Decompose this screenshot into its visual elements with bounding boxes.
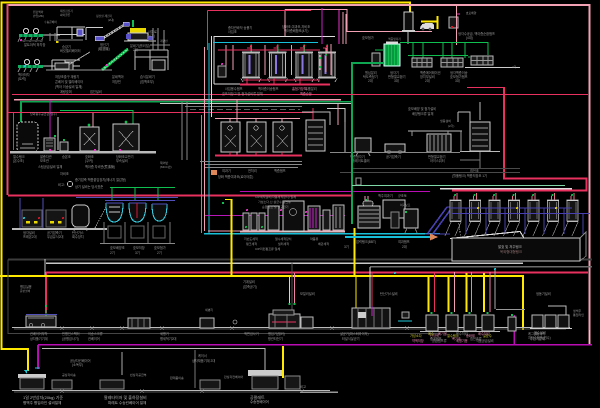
svg-text:(월풀탱크) 맥즙저장조 1기: (월풀탱크) 맥즙저장조 1기 <box>452 173 487 178</box>
svg-text:용수설비: 용수설비 <box>534 330 546 335</box>
svg-text:저장빈: 저장빈 <box>112 79 121 84</box>
svg-text:순환펌프 및 열교환기: 순환펌프 및 열교환기 <box>262 204 289 209</box>
svg-text:부속설비: 부속설비 <box>116 158 128 163</box>
svg-text:2기: 2기 <box>110 250 115 255</box>
svg-text:압력탱크(BBT): 압력탱크(BBT) <box>356 239 376 244</box>
svg-text:CIP리턴펌프류 일체: CIP리턴펌프류 일체 <box>255 246 280 251</box>
svg-text:버킷엘리베이터: 버킷엘리베이터 <box>60 48 81 53</box>
svg-text:(맥아 이송설비 일체): (맥아 이송설비 일체) <box>55 84 82 89</box>
svg-text:공상자이송: 공상자이송 <box>62 372 76 377</box>
svg-text:만상자컨베이어: 만상자컨베이어 <box>224 374 244 379</box>
svg-text:효모배양조: 효모배양조 <box>110 245 125 250</box>
svg-text:냉동기설비: 냉동기설비 <box>536 291 551 296</box>
svg-text:(2기): (2기) <box>448 123 454 128</box>
svg-text:살균기(파스퇴라이저): 살균기(파스퇴라이저) <box>340 331 369 336</box>
svg-text:(소독부): (소독부) <box>72 362 83 367</box>
svg-text:회수장치: 회수장치 <box>72 234 84 239</box>
svg-text:상자풀기기계: 상자풀기기계 <box>30 336 48 341</box>
svg-text:폐수: 폐수 <box>428 331 434 336</box>
svg-text:냉각수공급, 맥아즙순환펌프: 냉각수공급, 맥아즙순환펌프 <box>458 31 495 36</box>
svg-text:파레트 수송컨베이어 일체: 파레트 수송컨베이어 일체 <box>108 400 146 405</box>
svg-text:사입조: 사입조 <box>228 29 237 34</box>
svg-text:3대: 3대 <box>394 78 399 83</box>
svg-text:냉동설비: 냉동설비 <box>440 118 451 123</box>
svg-text:콘베어 및 엘리베이터: 콘베어 및 엘리베이터 <box>55 79 83 84</box>
svg-text:당화용수공급관(열수): 당화용수공급관(열수) <box>30 111 57 116</box>
svg-text:상자채움기계 2대: 상자채움기계 2대 <box>192 358 215 363</box>
svg-text:효모저장: 효모저장 <box>133 245 145 250</box>
svg-text:사입용수펌프: 사입용수펌프 <box>225 86 243 91</box>
svg-text:배양탱크류 일체: 배양탱크류 일체 <box>412 111 433 116</box>
svg-text:집진설비: 집진설비 <box>90 89 102 94</box>
svg-text:중계펌프: 중계펌프 <box>430 336 442 341</box>
svg-text:(공병검사기): (공병검사기) <box>62 336 79 341</box>
svg-text:(磁選機): (磁選機) <box>98 46 110 51</box>
svg-text:빈병인스펙터: 빈병인스펙터 <box>62 331 80 336</box>
svg-text:보일러설비: 보일러설비 <box>300 291 315 296</box>
svg-text:보조관: 보조관 <box>40 158 49 163</box>
svg-text:분쇄맥아: 분쇄맥아 <box>112 74 124 79</box>
svg-text:가성소다: 가성소다 <box>410 333 422 338</box>
svg-text:말트야적 하차장: 말트야적 하차장 <box>24 42 45 47</box>
svg-text:탄산가스설비: 탄산가스설비 <box>380 291 398 296</box>
svg-text:병세척기2대: 병세척기2대 <box>160 336 177 341</box>
svg-text:반입(25t): 반입(25t) <box>33 14 44 18</box>
svg-text:열수세척장치: 열수세척장치 <box>275 236 292 241</box>
svg-text:상기 설비는 당사표준: 상기 설비는 당사표준 <box>75 184 103 189</box>
svg-text:효모배양 및 첨가설비: 효모배양 및 첨가설비 <box>408 106 436 111</box>
svg-text:비고: 비고 <box>300 384 306 389</box>
svg-text:저빈도세척: 저빈도세척 <box>244 236 258 241</box>
svg-text:병입기(필러): 병입기(필러) <box>268 331 285 336</box>
svg-text:이송스크류: 이송스크류 <box>88 331 103 336</box>
svg-text:비고:: 비고: <box>58 182 65 187</box>
svg-text:자비조: 자비조 <box>60 171 69 176</box>
svg-text:컨베이어: 컨베이어 <box>88 336 100 341</box>
svg-text:컨베이어부착: 컨베이어부착 <box>30 331 48 336</box>
svg-text:2대: 2대 <box>368 78 373 83</box>
svg-text:지하수펌프(원수): 지하수펌프(원수) <box>528 335 551 340</box>
svg-text:트룹분리: 트룹분리 <box>305 86 317 91</box>
svg-text:(4기): (4기) <box>148 33 155 38</box>
svg-text:통입라인: 통입라인 <box>573 312 584 317</box>
svg-text:완제품이송: 완제품이송 <box>170 375 184 380</box>
svg-text:스팀공급설비 일체: 스팀공급설비 일체 <box>38 164 62 169</box>
svg-text:습식분쇄기: 습식분쇄기 <box>140 74 155 79</box>
svg-text:맥즙냉각기: 맥즙냉각기 <box>388 37 401 41</box>
svg-text:효모첨가: 효모첨가 <box>362 35 374 40</box>
svg-text:3기: 3기 <box>344 244 349 249</box>
svg-text:2대: 2대 <box>133 47 138 52</box>
svg-text:세병기: 세병기 <box>160 331 169 336</box>
svg-text:여과보조: 여과보조 <box>400 203 411 207</box>
svg-text:맥주여과기: 맥주여과기 <box>378 193 393 198</box>
svg-text:옥외형대형탱크: 옥외형대형탱크 <box>500 249 522 254</box>
svg-text:(MCC반): (MCC반) <box>160 164 172 169</box>
svg-text:팔레타이저 및 출하장설비: 팔레타이저 및 출하장설비 <box>104 394 147 400</box>
svg-text:승온조: 승온조 <box>62 154 71 159</box>
svg-text:3기: 3기 <box>135 250 140 255</box>
svg-text:당화 맥즙여과조(로이터툰): 당화 맥즙여과조(로이터툰) <box>218 174 253 179</box>
svg-text:(쿠커): (쿠커) <box>85 158 93 163</box>
svg-text:계량빈: 계량빈 <box>160 39 168 43</box>
svg-text:탱크세척: 탱크세척 <box>246 241 257 246</box>
svg-text:규조토: 규조토 <box>398 194 407 198</box>
svg-text:여과기: 여과기 <box>222 168 231 173</box>
svg-text:(압축공기): (압축공기) <box>243 284 257 289</box>
svg-text:(트럭): (트럭) <box>18 76 26 81</box>
svg-text:발효 및 저주탱크: 발효 및 저주탱크 <box>498 244 522 249</box>
svg-text:(4대): (4대) <box>466 35 473 40</box>
svg-text:케이서: 케이서 <box>198 353 207 358</box>
svg-text:2대: 2대 <box>425 78 430 83</box>
svg-text:(2대): (2대) <box>108 18 114 22</box>
svg-text:2기: 2기 <box>157 250 162 255</box>
svg-text:터널식살균기: 터널식살균기 <box>342 336 360 341</box>
svg-text:병맥주 병입라인 설비일체: 병맥주 병입라인 설비일체 <box>23 400 61 405</box>
svg-text:(침맥조부): (침맥조부) <box>140 79 154 84</box>
svg-text:침전조류: 침전조류 <box>470 336 482 341</box>
svg-text:액면검사기: 액면검사기 <box>244 331 259 336</box>
svg-text:빈상자공급부: 빈상자공급부 <box>130 372 147 377</box>
svg-text:맥아즙 자비관(煮沸管): 맥아즙 자비관(煮沸管) <box>85 164 115 169</box>
svg-text:2대: 2대 <box>402 244 407 249</box>
svg-text:1일 2만상자(20kg) 기준: 1일 2만상자(20kg) 기준 <box>23 394 63 400</box>
svg-text:싸이클론: 싸이클론 <box>60 13 71 17</box>
svg-text:배관세척: 배관세척 <box>318 241 329 246</box>
svg-text:프레온2대: 프레온2대 <box>23 234 37 239</box>
svg-text:3대: 3대 <box>455 78 460 83</box>
svg-text:(온수조): (온수조) <box>13 158 24 163</box>
svg-text:폐기물: 폐기물 <box>438 331 447 336</box>
svg-text:전처리: 전처리 <box>248 168 257 173</box>
svg-text:약액저장: 약액저장 <box>412 338 424 343</box>
svg-text:호프저장고 및 첨가설비류 일체: 호프저장고 및 첨가설비류 일체 <box>222 91 263 96</box>
svg-text:무급유식2대: 무급유식2대 <box>47 234 64 239</box>
svg-text:수송콘베어: 수송콘베어 <box>44 20 57 24</box>
svg-text:용수처리: 용수처리 <box>456 331 468 336</box>
svg-text:왕관타전기: 왕관타전기 <box>268 336 283 341</box>
svg-text:증기압축 맥즙끓임장치(에너지 절감형): 증기압축 맥즙끓임장치(에너지 절감형) <box>75 177 126 182</box>
svg-text:CIP세척설비(자동세척장치) 일체: CIP세척설비(자동세척장치) 일체 <box>255 194 296 199</box>
svg-text:가성소다,산,살균수 탱크류: 가성소다,산,살균수 탱크류 <box>258 199 291 204</box>
svg-text:계량호퍼: 계량호퍼 <box>60 89 72 94</box>
svg-text:필터세척: 필터세척 <box>278 241 289 246</box>
svg-text:기계설비: 기계설비 <box>243 279 255 284</box>
svg-text:맥즙순환: 맥즙순환 <box>300 91 312 96</box>
svg-text:4기: 4기 <box>512 64 517 69</box>
svg-text:운반설비: 운반설비 <box>20 289 31 293</box>
svg-text:효모배양: 효모배양 <box>466 11 477 15</box>
svg-text:약품류: 약품류 <box>310 236 319 241</box>
svg-text:세병기: 세병기 <box>205 307 214 312</box>
svg-text:맥아즙배합조(4기): 맥아즙배합조(4기) <box>284 28 308 33</box>
svg-text:공기압축기: 공기압축기 <box>386 154 401 159</box>
svg-text:아이스워터: 아이스워터 <box>430 158 445 163</box>
svg-text:플레이트쿨러: 플레이트쿨러 <box>352 158 370 163</box>
svg-text:폭기조: 폭기조 <box>452 336 461 341</box>
svg-text:수송컨베이어: 수송컨베이어 <box>250 399 269 404</box>
svg-text:맥즙펌프: 맥즙펌프 <box>274 168 286 173</box>
svg-text:맥아즙이송펌프: 맥아즙이송펌프 <box>258 86 279 91</box>
svg-text:효모첨가: 효모첨가 <box>154 245 166 250</box>
svg-text:배수처리: 배수처리 <box>478 331 490 336</box>
svg-text:저장조출구 계량기: 저장조출구 계량기 <box>55 74 79 79</box>
svg-text:여과펌프: 여과펌프 <box>398 239 410 244</box>
